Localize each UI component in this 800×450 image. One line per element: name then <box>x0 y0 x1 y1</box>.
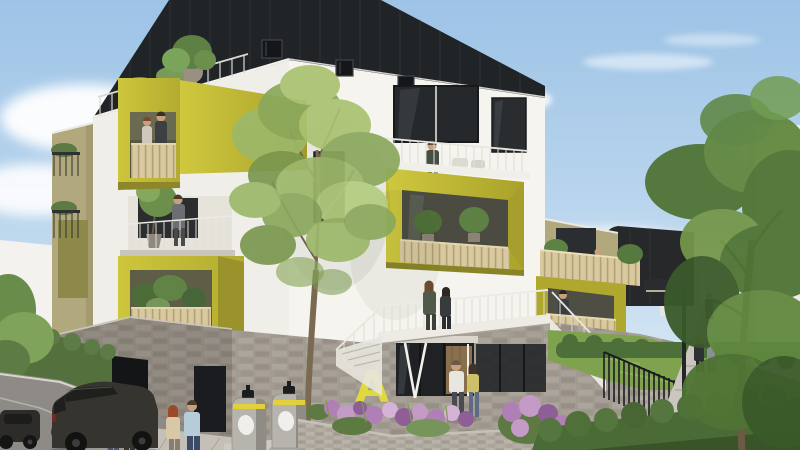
architectural-rendering: A <box>0 0 800 450</box>
beige-side-wing <box>51 123 93 340</box>
olive-panel <box>58 220 88 298</box>
